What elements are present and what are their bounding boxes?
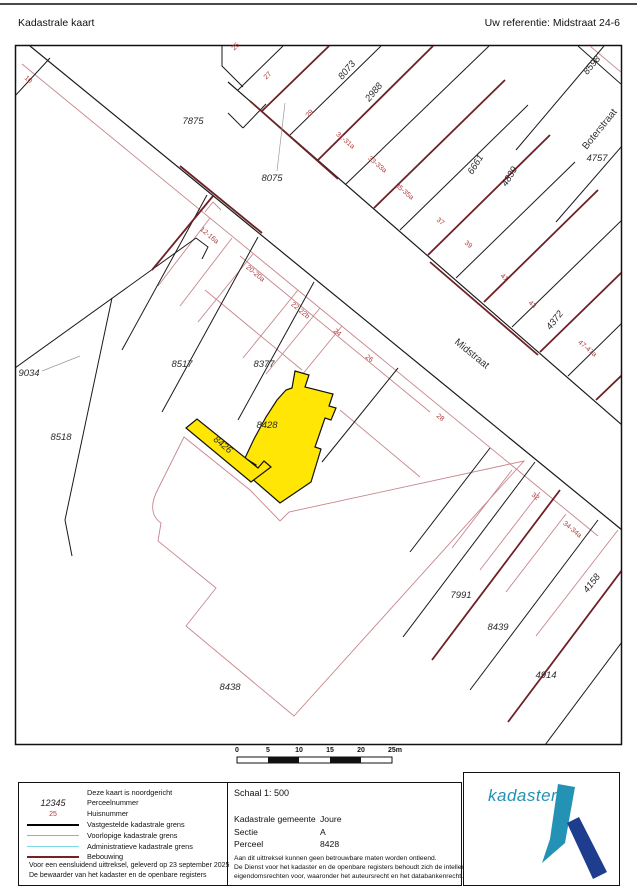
parcel-number: 8517 xyxy=(171,359,193,370)
legend-symbol: 25 xyxy=(19,809,87,818)
scale-label: Schaal 1: 500 xyxy=(234,788,289,798)
scale-tick: 5 xyxy=(266,747,270,754)
legend-symbol xyxy=(19,842,87,851)
kadaster-logo-box: kadaster xyxy=(463,772,620,886)
info-row-value: 8428 xyxy=(320,838,339,851)
scale-tick: 15 xyxy=(326,747,334,754)
legend: Deze kaart is noordgericht 12345Perceeln… xyxy=(19,783,228,885)
legend-footer-line: Voor een eensluidend uittreksel, gelever… xyxy=(29,861,229,871)
info-row-value: Joure xyxy=(320,813,342,826)
disclaimer-line: eigendomsrechten voor, waaronder het aut… xyxy=(234,872,479,881)
scale-tick: 20 xyxy=(357,747,365,754)
parcel-number: 9034 xyxy=(18,368,39,379)
legend-symbol-text: 25 xyxy=(49,811,57,818)
disclaimer-line: De Dienst voor het kadaster en de openba… xyxy=(234,863,479,872)
legend-item: Vastgestelde kadastrale grens xyxy=(19,819,227,829)
parcel-number: 8377 xyxy=(253,359,275,370)
parcel-number: 8428 xyxy=(256,420,278,431)
legend-item: Voorlopige kadastrale grens xyxy=(19,830,227,840)
legend-line-swatch xyxy=(27,824,79,826)
parcel-number: 8075 xyxy=(261,173,283,184)
parcel-number: 7875 xyxy=(182,116,204,127)
parcel-info-rows: Kadastrale gemeenteJoureSectieAPerceel84… xyxy=(234,813,342,851)
parcel-info-row: SectieA xyxy=(234,826,342,839)
legend-line-swatch xyxy=(27,835,79,837)
legend-item-label: Perceelnummer xyxy=(87,798,139,807)
legend-item: 12345Perceelnummer xyxy=(19,798,227,808)
scale-tick: 25m xyxy=(388,747,402,754)
parcel-number: 8438 xyxy=(219,682,241,693)
legend-line-swatch xyxy=(27,856,79,858)
legend-item-label: Bebouwing xyxy=(87,852,123,861)
cadastral-map: 7875807580732988859866614839475743728517… xyxy=(0,0,637,770)
scale-bar xyxy=(237,757,392,763)
legend-item-label: Vastgestelde kadastrale grens xyxy=(87,820,185,829)
legend-line-swatch xyxy=(27,846,79,848)
disclaimer-text: Aan dit uittreksel kunnen geen betrouwba… xyxy=(234,854,479,881)
legend-footer-line: De bewaarder van het kadaster en de open… xyxy=(29,871,229,881)
north-note: Deze kaart is noordgericht xyxy=(87,788,172,797)
parcel-number: 8439 xyxy=(487,622,509,633)
parcel-number: 4757 xyxy=(586,153,608,164)
info-row-label: Perceel xyxy=(234,838,320,851)
disclaimer-line: Aan dit uittreksel kunnen geen betrouwba… xyxy=(234,854,479,863)
info-box: Deze kaart is noordgericht 12345Perceeln… xyxy=(18,782,462,886)
parcel-number: 7991 xyxy=(450,590,471,601)
legend-symbol xyxy=(19,820,87,829)
legend-symbol xyxy=(19,831,87,840)
legend-item-label: Administratieve kadastrale grens xyxy=(87,842,193,851)
info-row-label: Kadastrale gemeente xyxy=(234,813,320,826)
parcel-number: 8518 xyxy=(50,432,72,443)
kadaster-logo-mark xyxy=(464,773,619,885)
legend-item: Administratieve kadastrale grens xyxy=(19,841,227,851)
legend-item: 25Huisnummer xyxy=(19,809,227,819)
scale-tick: 10 xyxy=(295,747,303,754)
logo-stroke-shape xyxy=(567,817,607,879)
legend-footer: Voor een eensluidend uittreksel, gelever… xyxy=(29,861,229,880)
parcel-number: 4914 xyxy=(535,670,556,681)
scale-tick: 0 xyxy=(235,747,239,754)
legend-item-label: Voorlopige kadastrale grens xyxy=(87,831,177,840)
parcel-info-row: Kadastrale gemeenteJoure xyxy=(234,813,342,826)
parcel-info-row: Perceel8428 xyxy=(234,838,342,851)
info-row-label: Sectie xyxy=(234,826,320,839)
legend-symbol: 12345 xyxy=(19,798,87,808)
info-row-value: A xyxy=(320,826,326,839)
map-info: Schaal 1: 500 Kadastrale gemeenteJoureSe… xyxy=(231,783,461,885)
legend-item-label: Huisnummer xyxy=(87,809,128,818)
legend-symbol xyxy=(19,852,87,861)
legend-symbol-text: 12345 xyxy=(40,798,65,808)
legend-items: 12345Perceelnummer25HuisnummerVastgestel… xyxy=(19,798,227,862)
